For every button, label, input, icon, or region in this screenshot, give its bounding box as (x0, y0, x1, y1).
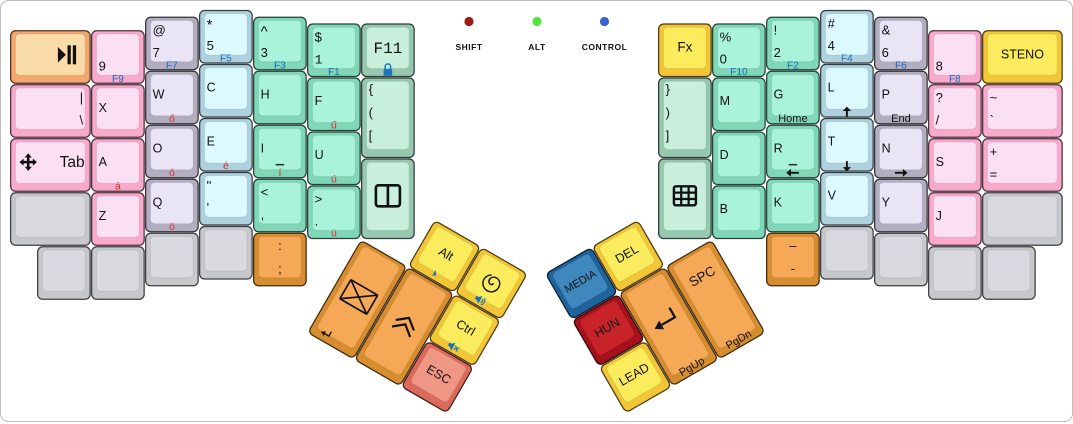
svg-text:ő: ő (169, 113, 175, 125)
svg-text:F9: F9 (112, 74, 124, 85)
svg-text:F11: F11 (373, 40, 402, 58)
svg-text:J: J (936, 209, 942, 223)
svg-text:X: X (99, 101, 108, 115)
svg-text:STENO: STENO (1001, 47, 1044, 61)
svg-text:ó: ó (169, 167, 175, 179)
svg-text:?: ? (936, 90, 943, 105)
svg-text:9: 9 (99, 58, 106, 73)
svg-text:{: { (369, 82, 374, 97)
svg-text:!: ! (774, 23, 778, 38)
svg-text:I: I (261, 141, 264, 155)
svg-text:Y: Y (882, 195, 891, 209)
svg-text:>: > (315, 191, 323, 206)
svg-text:F6: F6 (895, 60, 907, 71)
svg-text:&: & (882, 23, 891, 38)
svg-text:Fx: Fx (677, 40, 692, 55)
svg-text:V: V (828, 189, 837, 203)
svg-text:W: W (153, 87, 165, 101)
svg-text:/: / (936, 112, 940, 127)
svg-text:A: A (99, 155, 108, 169)
svg-text:|: | (80, 90, 83, 105)
svg-text:Home: Home (778, 113, 807, 125)
svg-text:ü: ü (331, 228, 337, 240)
svg-text::: : (278, 238, 282, 253)
svg-text:C: C (207, 81, 216, 95)
svg-text:H: H (261, 87, 270, 101)
svg-text:$: $ (315, 29, 323, 44)
svg-text:G: G (774, 87, 784, 101)
svg-text:T: T (828, 135, 836, 149)
svg-text:M: M (720, 94, 730, 108)
svg-text:F3: F3 (274, 60, 286, 71)
svg-text:7: 7 (153, 45, 160, 60)
svg-text:%: % (720, 29, 732, 44)
svg-text:": " (207, 178, 212, 193)
svg-text:5: 5 (207, 38, 214, 53)
svg-text:.: . (315, 214, 319, 229)
svg-text:=: = (990, 166, 998, 181)
svg-text:ú: ú (331, 174, 337, 186)
svg-text:é: é (223, 160, 229, 172)
svg-text:~: ~ (990, 90, 998, 105)
svg-text:Q: Q (153, 195, 163, 209)
svg-text:6: 6 (882, 45, 889, 60)
svg-text:P: P (882, 87, 890, 101)
svg-text:#: # (828, 16, 836, 31)
svg-text:–: – (789, 238, 797, 253)
svg-text:2: 2 (774, 45, 781, 60)
svg-text:E: E (207, 135, 215, 149)
svg-text:*: * (207, 17, 213, 34)
svg-text:í: í (278, 167, 281, 179)
svg-text:ALT: ALT (528, 42, 546, 52)
svg-text:CONTROL: CONTROL (582, 42, 628, 52)
svg-text:0: 0 (720, 52, 727, 67)
svg-text:(: ( (369, 105, 374, 120)
svg-text:á: á (115, 180, 121, 192)
svg-text:F1: F1 (328, 67, 340, 78)
svg-text:3: 3 (261, 45, 268, 60)
svg-text:;: ; (278, 261, 282, 276)
svg-text:O: O (153, 141, 163, 155)
svg-text:': ' (207, 200, 209, 215)
svg-text:1: 1 (315, 53, 323, 68)
svg-text:4: 4 (828, 38, 835, 53)
svg-text:]: ] (666, 128, 670, 143)
svg-text:8: 8 (936, 58, 943, 73)
svg-text:^: ^ (261, 23, 268, 40)
svg-text:F2: F2 (787, 60, 799, 71)
svg-text:B: B (720, 202, 728, 216)
svg-text:`: ` (990, 112, 994, 127)
svg-text:S: S (936, 155, 944, 169)
svg-text:}: } (666, 82, 671, 97)
svg-text:D: D (720, 148, 729, 162)
svg-text:L: L (828, 81, 835, 95)
svg-text:): ) (666, 105, 670, 120)
svg-text:@: @ (153, 23, 166, 38)
svg-text:SHIFT: SHIFT (455, 42, 482, 52)
svg-text:R: R (774, 141, 783, 155)
svg-text:F5: F5 (220, 54, 232, 65)
svg-text:\: \ (80, 112, 84, 127)
svg-text:F7: F7 (166, 60, 178, 71)
svg-text:F8: F8 (949, 74, 961, 85)
svg-text:ű: ű (331, 120, 337, 132)
svg-text:K: K (774, 195, 783, 209)
svg-text:<: < (261, 185, 269, 200)
svg-text:N: N (882, 141, 891, 155)
svg-text:End: End (891, 113, 911, 125)
svg-text:,: , (261, 207, 265, 222)
svg-text:Tab: Tab (60, 154, 85, 171)
svg-text:F: F (315, 94, 323, 108)
svg-text:Z: Z (99, 209, 107, 223)
svg-text:U: U (315, 148, 324, 162)
svg-text:[: [ (369, 128, 373, 143)
svg-text:ö: ö (169, 221, 175, 233)
svg-text:-: - (791, 261, 795, 276)
svg-text:F4: F4 (841, 54, 853, 65)
svg-text:+: + (990, 144, 998, 159)
svg-text:F10: F10 (730, 67, 748, 78)
